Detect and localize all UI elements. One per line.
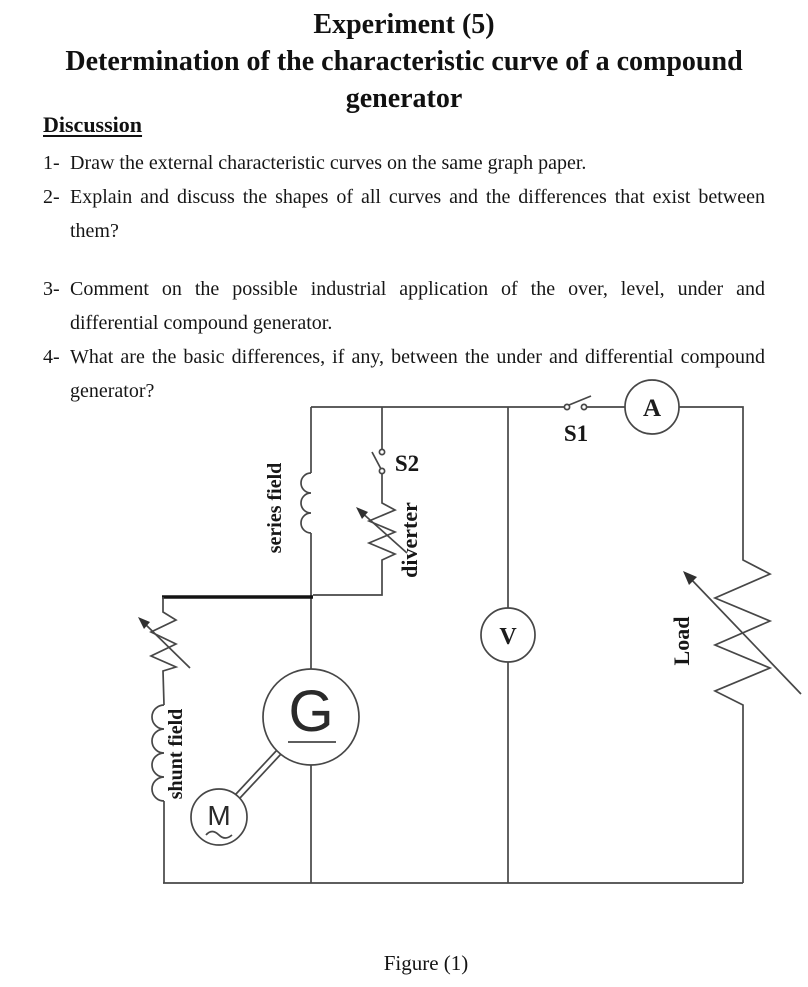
circuit-diagram: A Load S1 V S2 diverter <box>0 0 808 987</box>
shunt-field-label: shunt field <box>165 709 187 800</box>
shunt-rheostat-arrow <box>138 617 190 668</box>
diverter-rheostat <box>313 474 395 595</box>
switch-s2-label: S2 <box>395 451 419 476</box>
switch-s1-contact <box>564 404 569 409</box>
shunt-field-coil <box>152 705 164 801</box>
figure-caption: Figure (1) <box>326 951 526 976</box>
ammeter-symbol: A <box>625 380 679 434</box>
motor-symbol: M <box>191 789 247 845</box>
document-page: Experiment (5) Determination of the char… <box>0 0 808 987</box>
series-field-coil <box>301 473 311 533</box>
voltmeter-label: V <box>499 624 517 650</box>
voltmeter-symbol: V <box>481 608 535 662</box>
series-field-label: series field <box>264 463 286 554</box>
switch-s2-blade <box>372 452 381 469</box>
switch-s1-blade <box>569 396 591 405</box>
switch-s2 <box>372 449 385 473</box>
switch-s2-contact <box>379 449 384 454</box>
load-arrow <box>683 571 801 694</box>
switch-s1-contact <box>581 404 586 409</box>
load-label: Load <box>669 617 694 666</box>
motor-label: M <box>207 800 230 831</box>
ammeter-label: A <box>643 395 661 422</box>
switch-s1-label: S1 <box>564 421 588 446</box>
diverter-label: diverter <box>397 502 422 578</box>
motor-shaft <box>236 750 281 798</box>
switch-s2-contact <box>379 468 384 473</box>
generator-label: G <box>288 679 333 744</box>
